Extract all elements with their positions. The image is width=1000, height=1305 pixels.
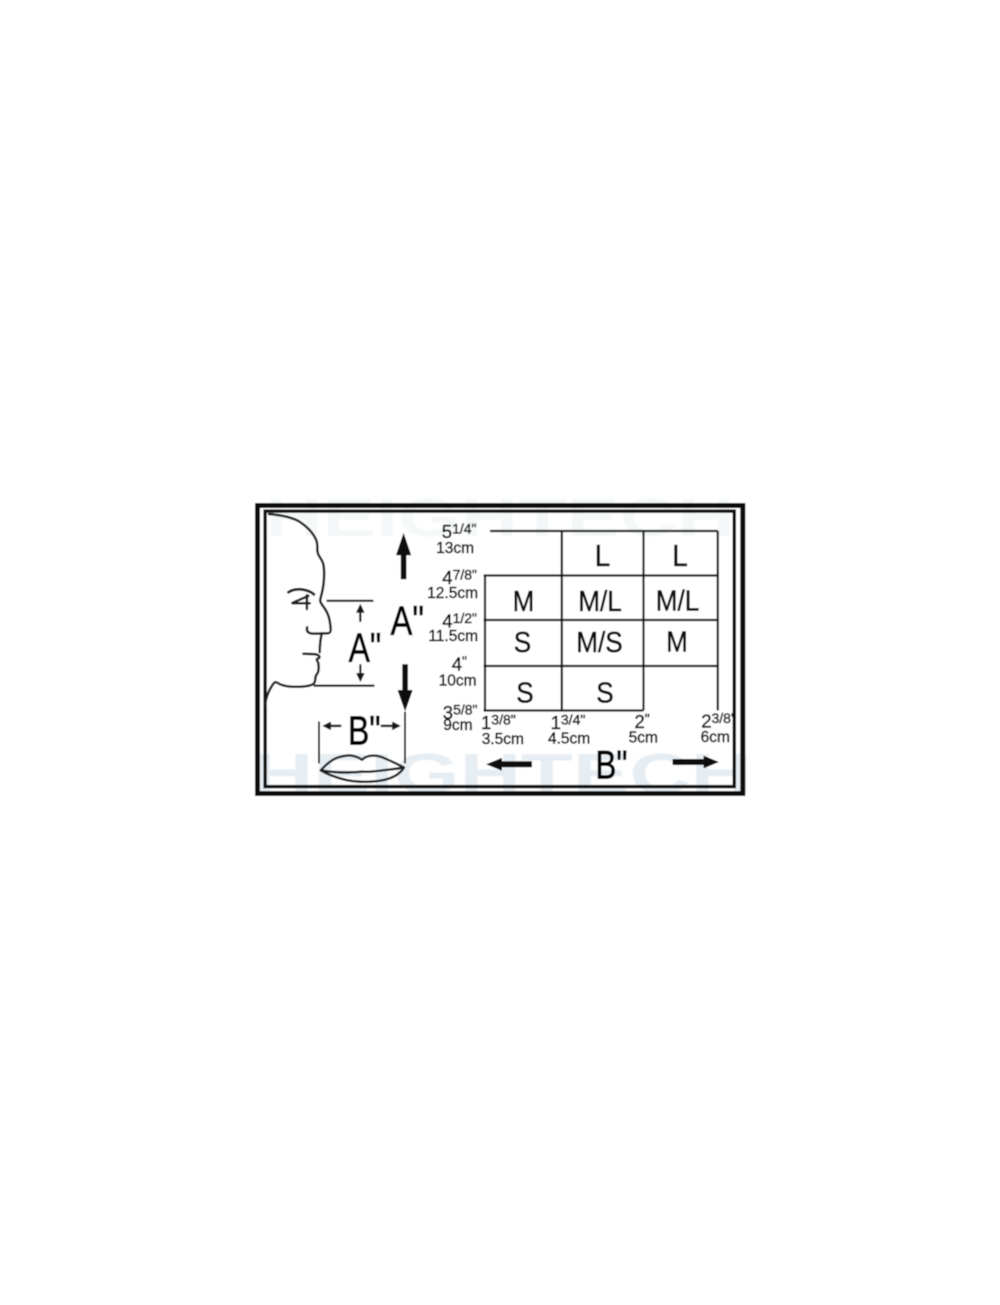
svg-text:S: S — [514, 626, 531, 659]
svg-text:S: S — [516, 676, 533, 709]
svg-text:3.5cm: 3.5cm — [482, 731, 524, 748]
svg-text:6cm: 6cm — [701, 729, 730, 746]
svg-text:M: M — [666, 625, 688, 658]
svg-text:4.5cm: 4.5cm — [548, 731, 590, 748]
svg-text:5cm: 5cm — [629, 730, 658, 747]
svg-text:B": B" — [596, 743, 628, 788]
svg-text:M/L: M/L — [578, 585, 622, 618]
svg-text:A": A" — [349, 625, 382, 671]
svg-text:B": B" — [348, 708, 381, 754]
svg-text:M: M — [513, 585, 535, 618]
svg-text:11.5cm: 11.5cm — [428, 628, 478, 645]
svg-text:13cm: 13cm — [436, 540, 474, 557]
svg-text:L: L — [672, 539, 688, 574]
svg-text:10cm: 10cm — [439, 673, 477, 690]
svg-text:M/S: M/S — [576, 626, 622, 659]
svg-text:M/L: M/L — [656, 584, 700, 617]
svg-text:12.5cm: 12.5cm — [427, 585, 478, 602]
svg-text:L: L — [595, 539, 611, 574]
svg-text:HEIGHTECH: HEIGHTECH — [265, 488, 735, 548]
svg-text:9cm: 9cm — [443, 717, 472, 734]
svg-text:S: S — [596, 676, 613, 709]
svg-text:A": A" — [391, 597, 425, 643]
